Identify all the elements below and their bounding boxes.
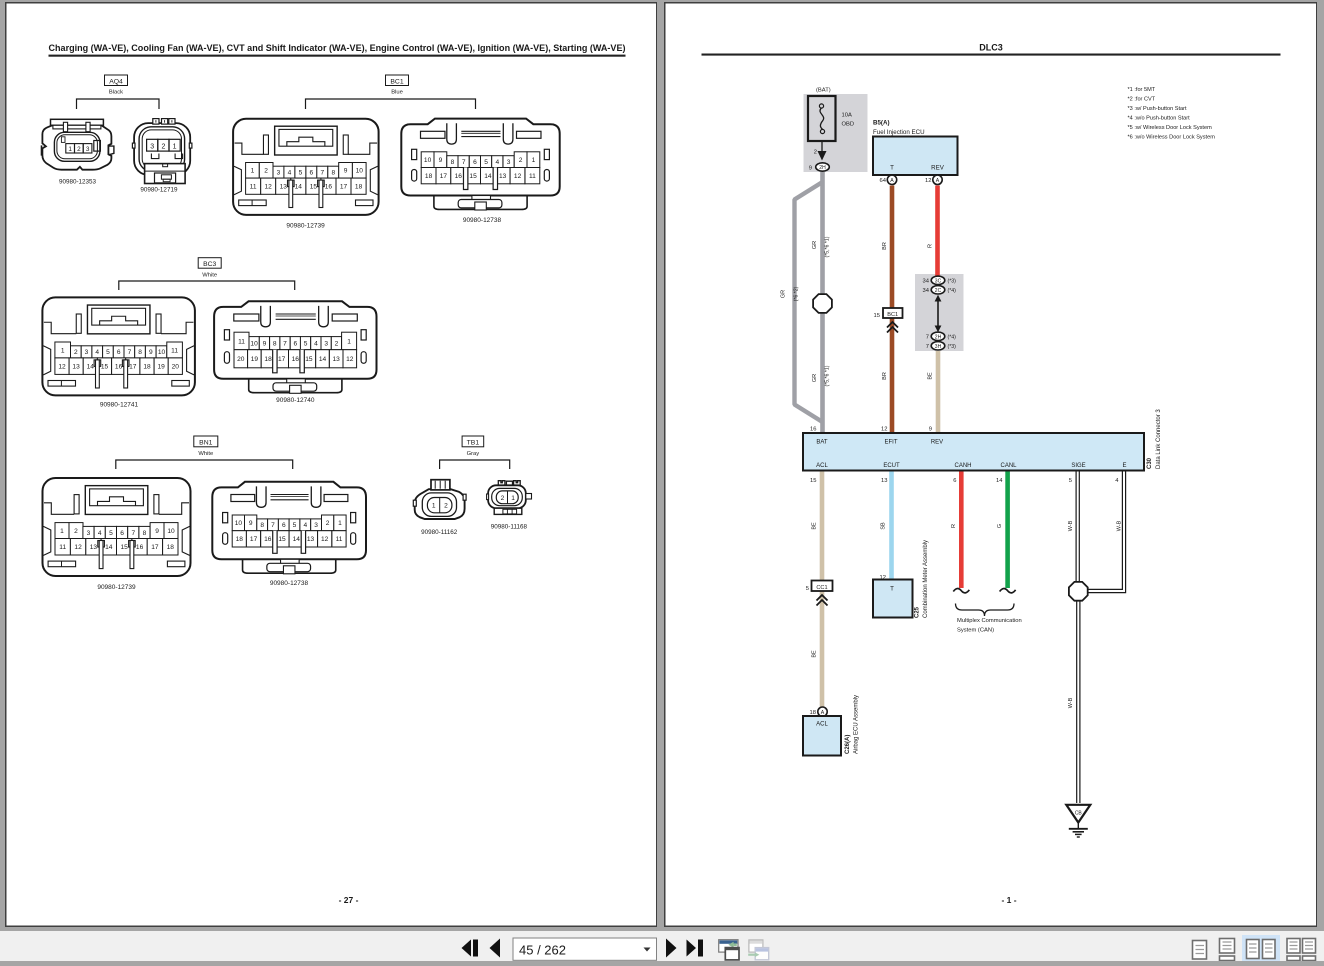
- svg-text:15: 15: [873, 313, 879, 319]
- svg-text:CB: CB: [1074, 811, 1082, 817]
- svg-text:6: 6: [116, 349, 120, 356]
- svg-text:4: 4: [314, 341, 318, 348]
- svg-text:11: 11: [335, 536, 342, 543]
- svg-text:3: 3: [86, 530, 90, 537]
- svg-text:8: 8: [331, 170, 335, 177]
- svg-text:90980-12738: 90980-12738: [269, 580, 308, 587]
- svg-text:12: 12: [74, 544, 82, 551]
- svg-text:(*6 *2): (*6 *2): [793, 286, 799, 301]
- svg-text:2: 2: [813, 150, 816, 156]
- svg-text:64: 64: [879, 178, 886, 184]
- svg-text:2: 2: [500, 495, 504, 502]
- svg-text:5: 5: [805, 586, 808, 592]
- svg-text:18: 18: [235, 536, 243, 543]
- svg-text:ACL: ACL: [816, 463, 828, 469]
- svg-text:14: 14: [294, 184, 302, 191]
- svg-text:3H: 3H: [934, 344, 941, 350]
- svg-text:11: 11: [249, 184, 256, 191]
- svg-text:1: 1: [172, 143, 176, 150]
- svg-text:- 27 -: - 27 -: [338, 895, 358, 905]
- svg-text:2: 2: [73, 349, 77, 356]
- svg-text:15: 15: [100, 364, 108, 371]
- svg-text:13: 13: [881, 478, 887, 484]
- svg-text:(*3): (*3): [947, 279, 956, 285]
- svg-text:(*5,*6 *1): (*5,*6 *1): [824, 365, 830, 386]
- svg-text:16: 16: [135, 544, 143, 551]
- svg-text:11: 11: [528, 173, 535, 180]
- svg-text:20: 20: [237, 356, 245, 363]
- svg-text:3: 3: [324, 341, 328, 348]
- svg-text:Data Link Connector 3: Data Link Connector 3: [1156, 409, 1162, 469]
- svg-text:3: 3: [84, 349, 88, 356]
- svg-text:10: 10: [355, 168, 363, 175]
- svg-text:18: 18: [264, 356, 272, 363]
- svg-text:8: 8: [272, 341, 276, 348]
- svg-text:14: 14: [292, 536, 300, 543]
- svg-text:GR: GR: [812, 241, 818, 249]
- svg-text:CANH: CANH: [954, 463, 971, 469]
- svg-text:16: 16: [264, 536, 272, 543]
- svg-text:15: 15: [278, 536, 286, 543]
- svg-text:90980-11162: 90980-11162: [421, 529, 458, 536]
- svg-text:8: 8: [138, 349, 142, 356]
- svg-text:20: 20: [171, 364, 179, 371]
- svg-text:5: 5: [109, 530, 113, 537]
- svg-text:W-B: W-B: [1116, 520, 1122, 531]
- svg-text:14: 14: [105, 544, 113, 551]
- svg-text:GR: GR: [812, 374, 818, 382]
- svg-text:4: 4: [287, 170, 291, 177]
- svg-text:15: 15: [309, 184, 317, 191]
- svg-text:2: 2: [444, 503, 448, 510]
- svg-text:90980-12739: 90980-12739: [97, 584, 136, 591]
- svg-text:90980-11168: 90980-11168: [490, 524, 527, 531]
- svg-text:3: 3: [506, 159, 510, 166]
- svg-text:8: 8: [450, 159, 454, 166]
- svg-text:12: 12: [321, 536, 329, 543]
- svg-text:1: 1: [431, 503, 435, 510]
- svg-text:*3 :w/ Push-button Start: *3 :w/ Push-button Start: [1127, 106, 1187, 112]
- svg-text:1: 1: [347, 338, 351, 345]
- svg-text:ACL: ACL: [816, 722, 828, 728]
- svg-text:5: 5: [303, 341, 307, 348]
- svg-text:6: 6: [293, 341, 297, 348]
- svg-text:90980-12738: 90980-12738: [462, 217, 501, 224]
- svg-text:Black: Black: [108, 90, 122, 96]
- svg-text:Combination Meter Assembly: Combination Meter Assembly: [923, 540, 929, 618]
- svg-text:7: 7: [271, 522, 275, 529]
- svg-text:2: 2: [325, 520, 329, 527]
- svg-text:BC1: BC1: [887, 312, 898, 318]
- svg-text:Gray: Gray: [466, 451, 479, 457]
- svg-text:15: 15: [469, 173, 477, 180]
- svg-text:17: 17: [439, 173, 447, 180]
- svg-text:9: 9: [248, 520, 252, 527]
- svg-text:16: 16: [114, 364, 122, 371]
- svg-text:White: White: [202, 273, 217, 279]
- svg-text:2: 2: [264, 168, 268, 175]
- svg-text:6: 6: [953, 478, 956, 484]
- svg-text:5: 5: [106, 349, 110, 356]
- svg-text:16: 16: [454, 173, 462, 180]
- svg-text:15: 15: [810, 478, 816, 484]
- svg-text:Blue: Blue: [391, 90, 403, 96]
- svg-text:R: R: [950, 524, 956, 528]
- svg-text:7: 7: [461, 159, 465, 166]
- svg-text:14: 14: [86, 364, 94, 371]
- svg-text:*5 :w/ Wireless Door Lock Syst: *5 :w/ Wireless Door Lock System: [1127, 125, 1212, 131]
- svg-text:13: 13: [89, 544, 97, 551]
- svg-text:SIGE: SIGE: [1071, 463, 1085, 469]
- svg-text:1: 1: [338, 520, 342, 527]
- svg-text:*2 :for CVT: *2 :for CVT: [1127, 97, 1155, 103]
- svg-text:7: 7: [925, 344, 928, 350]
- svg-text:18: 18: [166, 544, 174, 551]
- svg-text:3: 3: [276, 170, 280, 177]
- svg-text:45 / 262: 45 / 262: [519, 943, 566, 958]
- svg-text:10A: 10A: [841, 113, 851, 119]
- svg-text:4: 4: [495, 159, 499, 166]
- svg-text:ECUT: ECUT: [883, 463, 900, 469]
- svg-text:OBD: OBD: [841, 122, 854, 128]
- svg-text:90980-12741: 90980-12741: [99, 402, 138, 409]
- svg-text:- 1 -: - 1 -: [1001, 895, 1016, 905]
- svg-text:BC1: BC1: [390, 78, 403, 85]
- svg-text:1: 1: [250, 168, 254, 175]
- svg-text:12: 12: [346, 356, 354, 363]
- svg-text:1: 1: [60, 347, 64, 354]
- svg-text:(*4): (*4): [947, 335, 956, 341]
- svg-text:T: T: [890, 165, 894, 172]
- svg-text:SB: SB: [880, 522, 886, 530]
- svg-text:*6 :w/o Wireless Door Lock Sys: *6 :w/o Wireless Door Lock System: [1127, 135, 1215, 141]
- svg-text:2: 2: [334, 341, 338, 348]
- svg-text:BAT: BAT: [816, 440, 828, 446]
- svg-text:13: 13: [72, 364, 80, 371]
- svg-text:REV: REV: [930, 440, 942, 446]
- svg-text:W-B: W-B: [1068, 520, 1074, 531]
- svg-text:7: 7: [320, 170, 324, 177]
- svg-text:G: G: [997, 524, 1003, 528]
- svg-text:10: 10: [157, 349, 165, 356]
- svg-text:R: R: [927, 244, 933, 248]
- svg-text:2H: 2H: [934, 335, 941, 341]
- svg-text:C26(A): C26(A): [845, 735, 851, 754]
- svg-text:Airbag ECU Assembly: Airbag ECU Assembly: [853, 695, 859, 754]
- svg-text:12: 12: [925, 178, 931, 184]
- svg-text:9: 9: [155, 528, 159, 535]
- svg-text:9: 9: [808, 165, 811, 171]
- svg-text:7: 7: [127, 349, 131, 356]
- svg-text:34: 34: [922, 288, 929, 294]
- svg-text:*4 :w/o Push-button Start: *4 :w/o Push-button Start: [1127, 116, 1190, 122]
- svg-text:System (CAN): System (CAN): [957, 628, 994, 634]
- svg-text:34: 34: [922, 279, 929, 285]
- svg-text:12: 12: [264, 184, 272, 191]
- svg-text:9: 9: [928, 427, 931, 433]
- svg-text:*1 :for 5MT: *1 :for 5MT: [1127, 87, 1155, 93]
- svg-text:9: 9: [148, 349, 152, 356]
- svg-text:12: 12: [513, 173, 521, 180]
- svg-text:17: 17: [249, 536, 257, 543]
- svg-text:1: 1: [511, 495, 515, 502]
- svg-text:4: 4: [303, 522, 307, 529]
- svg-text:1: 1: [60, 528, 64, 535]
- svg-text:90980-12739: 90980-12739: [286, 223, 325, 230]
- svg-text:Fuel Injection ECU: Fuel Injection ECU: [873, 129, 925, 136]
- svg-text:AQ4: AQ4: [109, 78, 123, 85]
- svg-text:W-B: W-B: [1068, 697, 1074, 708]
- svg-text:7: 7: [131, 530, 135, 537]
- svg-text:A: A: [890, 178, 894, 184]
- svg-text:15: 15: [305, 356, 313, 363]
- svg-text:5: 5: [292, 522, 296, 529]
- svg-text:17: 17: [129, 364, 137, 371]
- svg-text:A: A: [935, 178, 939, 184]
- svg-text:8: 8: [142, 530, 146, 537]
- svg-text:13: 13: [332, 356, 340, 363]
- svg-text:3: 3: [85, 146, 89, 153]
- svg-text:14: 14: [484, 173, 492, 180]
- svg-text:BE: BE: [811, 650, 817, 658]
- svg-text:7: 7: [283, 341, 287, 348]
- svg-text:6: 6: [309, 170, 313, 177]
- svg-text:B5(A): B5(A): [873, 120, 890, 127]
- svg-text:9: 9: [262, 341, 266, 348]
- svg-text:C25: C25: [914, 606, 920, 618]
- svg-text:CC1: CC1: [816, 585, 827, 591]
- svg-text:REV: REV: [931, 165, 945, 172]
- svg-text:GR: GR: [780, 290, 786, 298]
- svg-text:18: 18: [424, 173, 432, 180]
- svg-text:(BAT): (BAT): [816, 88, 831, 94]
- svg-text:10: 10: [234, 520, 242, 527]
- svg-text:BE: BE: [811, 522, 817, 530]
- svg-text:90980-12353: 90980-12353: [58, 179, 96, 186]
- svg-text:C30: C30: [1147, 457, 1153, 469]
- svg-text:90980-12740: 90980-12740: [276, 397, 315, 404]
- svg-text:14: 14: [996, 478, 1003, 484]
- svg-text:13: 13: [306, 536, 314, 543]
- svg-text:Charging (WA-VE), Cooling Fan: Charging (WA-VE), Cooling Fan (WA-VE), C…: [48, 43, 625, 53]
- svg-text:Multiplex Communication: Multiplex Communication: [957, 618, 1022, 624]
- svg-text:BR: BR: [882, 242, 888, 250]
- svg-text:10: 10: [167, 528, 175, 535]
- svg-text:4: 4: [95, 349, 99, 356]
- svg-text:17: 17: [278, 356, 286, 363]
- svg-text:2: 2: [74, 528, 78, 535]
- svg-text:3C: 3C: [934, 279, 941, 285]
- svg-text:BR: BR: [882, 372, 888, 380]
- svg-text:6: 6: [281, 522, 285, 529]
- svg-text:E: E: [1122, 463, 1126, 469]
- svg-text:6: 6: [473, 159, 477, 166]
- svg-text:(*4): (*4): [947, 288, 956, 294]
- svg-text:T: T: [890, 586, 894, 593]
- svg-text:2C: 2C: [934, 288, 941, 294]
- svg-text:18: 18: [143, 364, 151, 371]
- svg-text:4: 4: [97, 530, 101, 537]
- svg-text:11: 11: [59, 544, 66, 551]
- svg-text:10: 10: [250, 341, 258, 348]
- svg-text:9: 9: [438, 157, 442, 164]
- svg-text:10: 10: [423, 157, 431, 164]
- svg-text:5: 5: [484, 159, 488, 166]
- svg-text:7: 7: [925, 335, 928, 341]
- svg-text:13: 13: [279, 184, 287, 191]
- svg-text:17: 17: [151, 544, 159, 551]
- svg-text:16: 16: [291, 356, 299, 363]
- svg-text:11: 11: [171, 347, 178, 354]
- svg-text:12: 12: [881, 427, 887, 433]
- svg-text:11: 11: [238, 338, 245, 345]
- svg-text:8: 8: [260, 522, 264, 529]
- svg-text:BC3: BC3: [203, 261, 216, 268]
- svg-text:14: 14: [318, 356, 326, 363]
- svg-text:BE: BE: [927, 372, 933, 380]
- svg-text:5: 5: [1068, 478, 1071, 484]
- svg-text:6: 6: [120, 530, 124, 537]
- svg-text:16: 16: [324, 184, 332, 191]
- svg-text:White: White: [198, 451, 213, 457]
- svg-text:CANL: CANL: [1000, 463, 1017, 469]
- svg-text:19: 19: [157, 364, 165, 371]
- svg-text:5: 5: [298, 170, 302, 177]
- svg-text:2: 2: [161, 143, 165, 150]
- svg-text:9: 9: [343, 168, 347, 175]
- svg-text:3: 3: [150, 143, 154, 150]
- svg-text:2H: 2H: [819, 165, 826, 171]
- svg-text:1: 1: [68, 146, 72, 153]
- svg-text:2: 2: [518, 157, 522, 164]
- svg-text:DLC3: DLC3: [979, 43, 1003, 53]
- svg-text:17: 17: [339, 184, 347, 191]
- svg-text:BN1: BN1: [199, 440, 212, 447]
- svg-text:EFIT: EFIT: [884, 440, 897, 446]
- svg-text:1: 1: [531, 157, 535, 164]
- svg-text:3: 3: [314, 522, 318, 529]
- svg-text:(*5,*6 *1): (*5,*6 *1): [824, 236, 830, 257]
- svg-text:TB1: TB1: [466, 440, 479, 447]
- svg-text:16: 16: [810, 427, 816, 433]
- svg-text:15: 15: [120, 544, 128, 551]
- svg-text:90980-12719: 90980-12719: [140, 187, 178, 194]
- svg-text:13: 13: [499, 173, 507, 180]
- svg-text:19: 19: [250, 356, 258, 363]
- svg-text:(*3): (*3): [947, 344, 956, 350]
- svg-text:12: 12: [58, 364, 66, 371]
- svg-text:18: 18: [354, 184, 362, 191]
- svg-text:2: 2: [77, 146, 81, 153]
